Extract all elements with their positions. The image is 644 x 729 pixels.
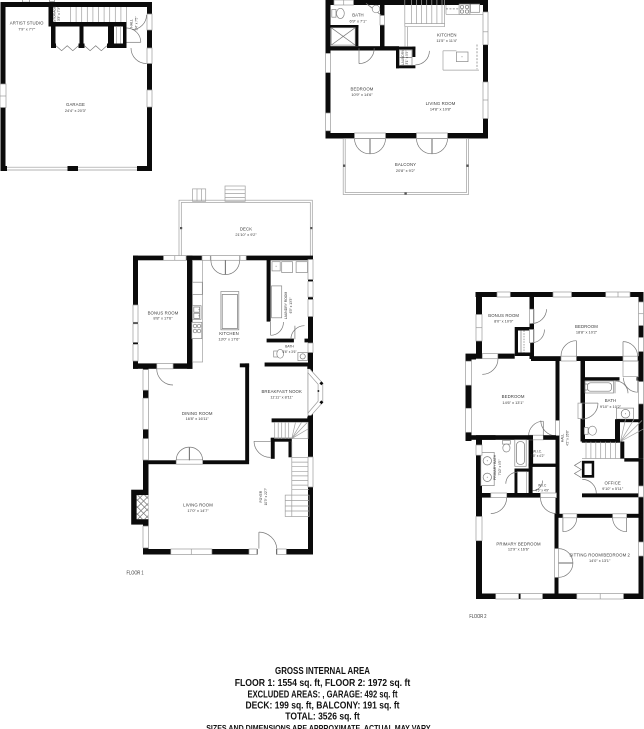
svg-text:16'8" x 16'11": 16'8" x 16'11" (186, 416, 210, 421)
svg-text:LAUNDRY: LAUNDRY (401, 49, 405, 65)
svg-text:FLOOR 2: FLOOR 2 (469, 614, 486, 620)
svg-text:13'0" x 17'6": 13'0" x 17'6" (218, 336, 240, 341)
svg-text:STORAGE: STORAGE (52, 5, 56, 22)
svg-text:14'6" x 13'1": 14'6" x 13'1" (502, 400, 524, 405)
svg-text:6'6" x 3'6": 6'6" x 3'6" (283, 350, 297, 354)
svg-text:9'10" x 5'11": 9'10" x 5'11" (602, 486, 624, 491)
svg-text:BALCONY: BALCONY (395, 162, 416, 167)
svg-text:11'5" x 11'4": 11'5" x 11'4" (436, 38, 457, 43)
svg-text:10'3" x 22'7": 10'3" x 22'7" (264, 488, 268, 505)
svg-text:ARTIST STUDIO: ARTIST STUDIO (10, 20, 44, 25)
svg-text:BEDROOM: BEDROOM (575, 324, 598, 329)
svg-text:PRIMARY BATH: PRIMARY BATH (493, 454, 497, 480)
svg-text:DECK: 199 sq. ft, BALCONY: 191: DECK: 199 sq. ft, BALCONY: 191 sq. ft (246, 701, 401, 712)
svg-text:GARAGE: GARAGE (66, 102, 85, 107)
svg-text:LIVING ROOM: LIVING ROOM (426, 101, 456, 106)
svg-text:TOTAL: 3526 sq. ft: TOTAL: 3526 sq. ft (285, 712, 360, 723)
svg-text:SITTING ROOM/BEDROOM 2: SITTING ROOM/BEDROOM 2 (569, 553, 630, 558)
svg-text:W.I.C.: W.I.C. (533, 449, 542, 453)
svg-text:7'10" x 9'5": 7'10" x 9'5" (498, 460, 502, 476)
svg-text:LAUNDRY ROOM: LAUNDRY ROOM (284, 292, 288, 320)
svg-text:11'11" x 8'11": 11'11" x 8'11" (270, 395, 293, 400)
svg-text:BONUS ROOM: BONUS ROOM (148, 310, 179, 315)
svg-text:6'9" x 7'1": 6'9" x 7'1" (349, 19, 367, 24)
svg-text:10'9" x 14'6": 10'9" x 14'6" (351, 92, 373, 97)
svg-text:4'5" x 4'9": 4'5" x 4'9" (535, 489, 549, 493)
svg-text:6'5" x 13'3": 6'5" x 13'3" (289, 298, 293, 314)
svg-text:14'8" x 10'8": 14'8" x 10'8" (430, 106, 452, 111)
svg-text:HALL: HALL (561, 434, 565, 443)
svg-text:GROSS INTERNAL AREA: GROSS INTERNAL AREA (275, 666, 370, 677)
svg-text:4'2" x 26'6": 4'2" x 26'6" (566, 430, 570, 446)
svg-text:7'5" x 4'2": 7'5" x 4'2" (531, 454, 545, 458)
svg-text:FLOOR 1: FLOOR 1 (127, 570, 144, 576)
svg-text:BREAKFAST NOOK: BREAKFAST NOOK (261, 389, 302, 394)
svg-text:FLOOR 1: 1554 sq. ft, FLOOR 2:: FLOOR 1: 1554 sq. ft, FLOOR 2: 1972 sq. … (235, 678, 411, 689)
svg-text:8'0" x 10'0": 8'0" x 10'0" (494, 318, 514, 323)
svg-text:7'9" x 7'7": 7'9" x 7'7" (18, 27, 36, 32)
svg-text:12'9" x 16'6": 12'9" x 16'6" (508, 547, 530, 552)
svg-text:BONUS ROOM: BONUS ROOM (488, 313, 519, 318)
svg-text:3'1" x 5'9": 3'1" x 5'9" (405, 51, 409, 65)
svg-text:EXCLUDED AREAS: , GARAGE: 492: EXCLUDED AREAS: , GARAGE: 492 sq. ft (248, 689, 399, 700)
svg-text:8'8" x 17'6": 8'8" x 17'6" (153, 316, 173, 321)
svg-text:LIVING ROOM: LIVING ROOM (183, 502, 213, 507)
svg-text:24'4" x 20'3": 24'4" x 20'3" (65, 108, 87, 113)
svg-text:18'8" x 10'2": 18'8" x 10'2" (576, 329, 598, 334)
svg-text:SIZES AND DIMENSIONS ARE APPRO: SIZES AND DIMENSIONS ARE APPROXIMATE, AC… (206, 723, 432, 729)
svg-text:KITCHEN: KITCHEN (219, 331, 239, 336)
svg-text:17'0" x 14'7": 17'0" x 14'7" (187, 508, 209, 513)
svg-text:BATH: BATH (605, 398, 617, 403)
svg-text:BEDROOM: BEDROOM (351, 86, 374, 91)
svg-text:OFFICE: OFFICE (605, 481, 621, 486)
svg-text:W.I.C: W.I.C (538, 484, 547, 488)
svg-text:BATH: BATH (352, 13, 364, 18)
svg-text:PRIMARY BEDROOM: PRIMARY BEDROOM (496, 541, 541, 546)
svg-text:BEDROOM: BEDROOM (502, 394, 525, 399)
svg-text:DECK: DECK (240, 226, 252, 231)
svg-text:14'0" x 13'1": 14'0" x 13'1" (589, 558, 611, 563)
svg-text:HALL: HALL (130, 19, 134, 28)
svg-text:21'10" x 9'2": 21'10" x 9'2" (235, 232, 257, 237)
svg-text:BATH: BATH (285, 344, 294, 348)
svg-text:FOYER: FOYER (259, 490, 263, 502)
svg-text:3'3" x 7'3": 3'3" x 7'3" (57, 7, 61, 21)
svg-text:9'10" x 10'2": 9'10" x 10'2" (600, 404, 622, 409)
svg-text:20'8" x 9'2": 20'8" x 9'2" (396, 168, 416, 173)
svg-text:KITCHEN: KITCHEN (437, 32, 457, 37)
